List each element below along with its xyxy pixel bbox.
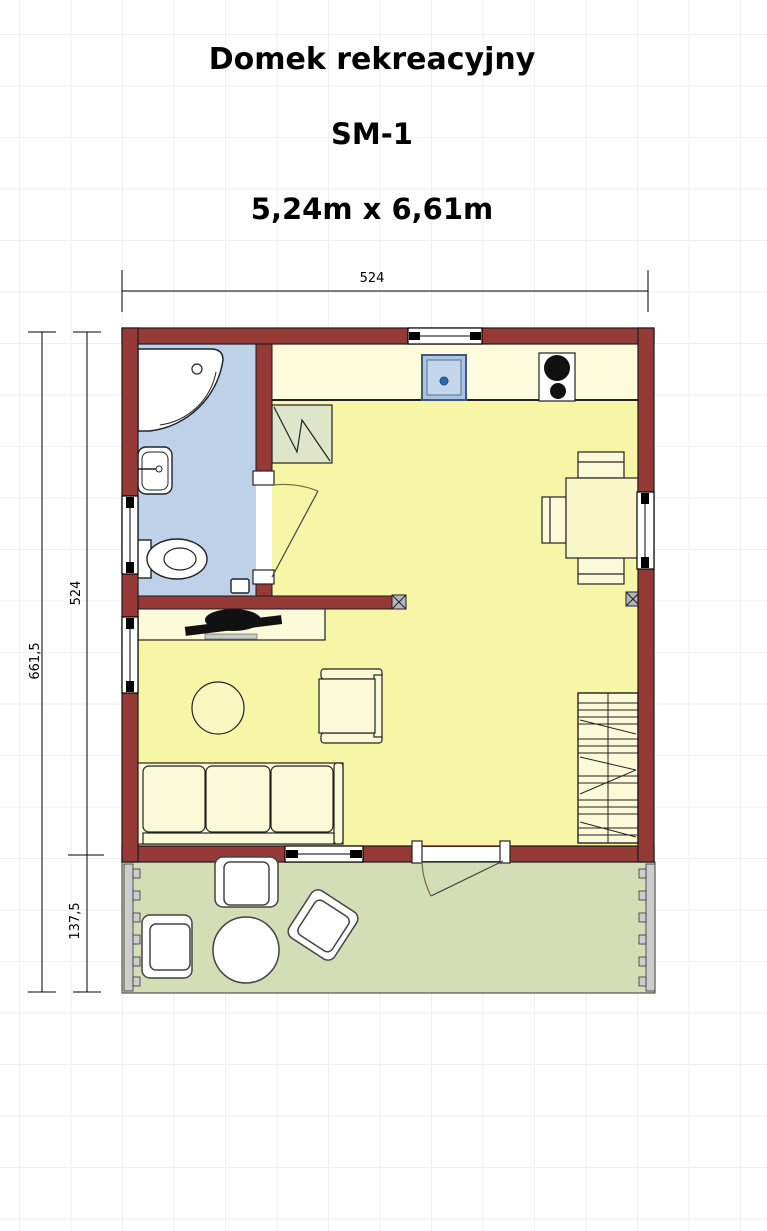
shelf — [205, 634, 257, 639]
sofa — [137, 763, 343, 844]
chair-top — [578, 452, 624, 478]
bathroom-bin — [231, 579, 249, 593]
dining-table — [566, 478, 638, 558]
washbasin — [138, 447, 172, 494]
window-right — [637, 492, 654, 569]
terrace-round-table — [213, 917, 279, 983]
shower-drain — [192, 364, 202, 374]
coffee-table — [192, 682, 244, 734]
cooktop — [539, 353, 575, 401]
terrace-armchair-left — [142, 915, 192, 978]
armchair — [319, 669, 382, 743]
chair-bottom — [578, 558, 624, 584]
window-living-left — [122, 617, 138, 693]
wardrobe — [272, 405, 332, 463]
chair-left — [542, 497, 566, 543]
toilet — [137, 539, 207, 579]
floor-plan-page: Domek rekreacyjny SM-1 5,24m x 6,61m 524… — [0, 0, 767, 1231]
staircase — [578, 693, 638, 843]
wall-vent-box — [392, 595, 406, 609]
window-top — [408, 328, 482, 344]
window-bottom — [285, 846, 363, 862]
window-bathroom-left — [122, 496, 138, 574]
terrace — [122, 862, 655, 993]
kitchen-sink — [422, 355, 466, 400]
terrace-armchair-top — [215, 857, 278, 907]
floor-plan-drawing — [0, 0, 767, 1231]
